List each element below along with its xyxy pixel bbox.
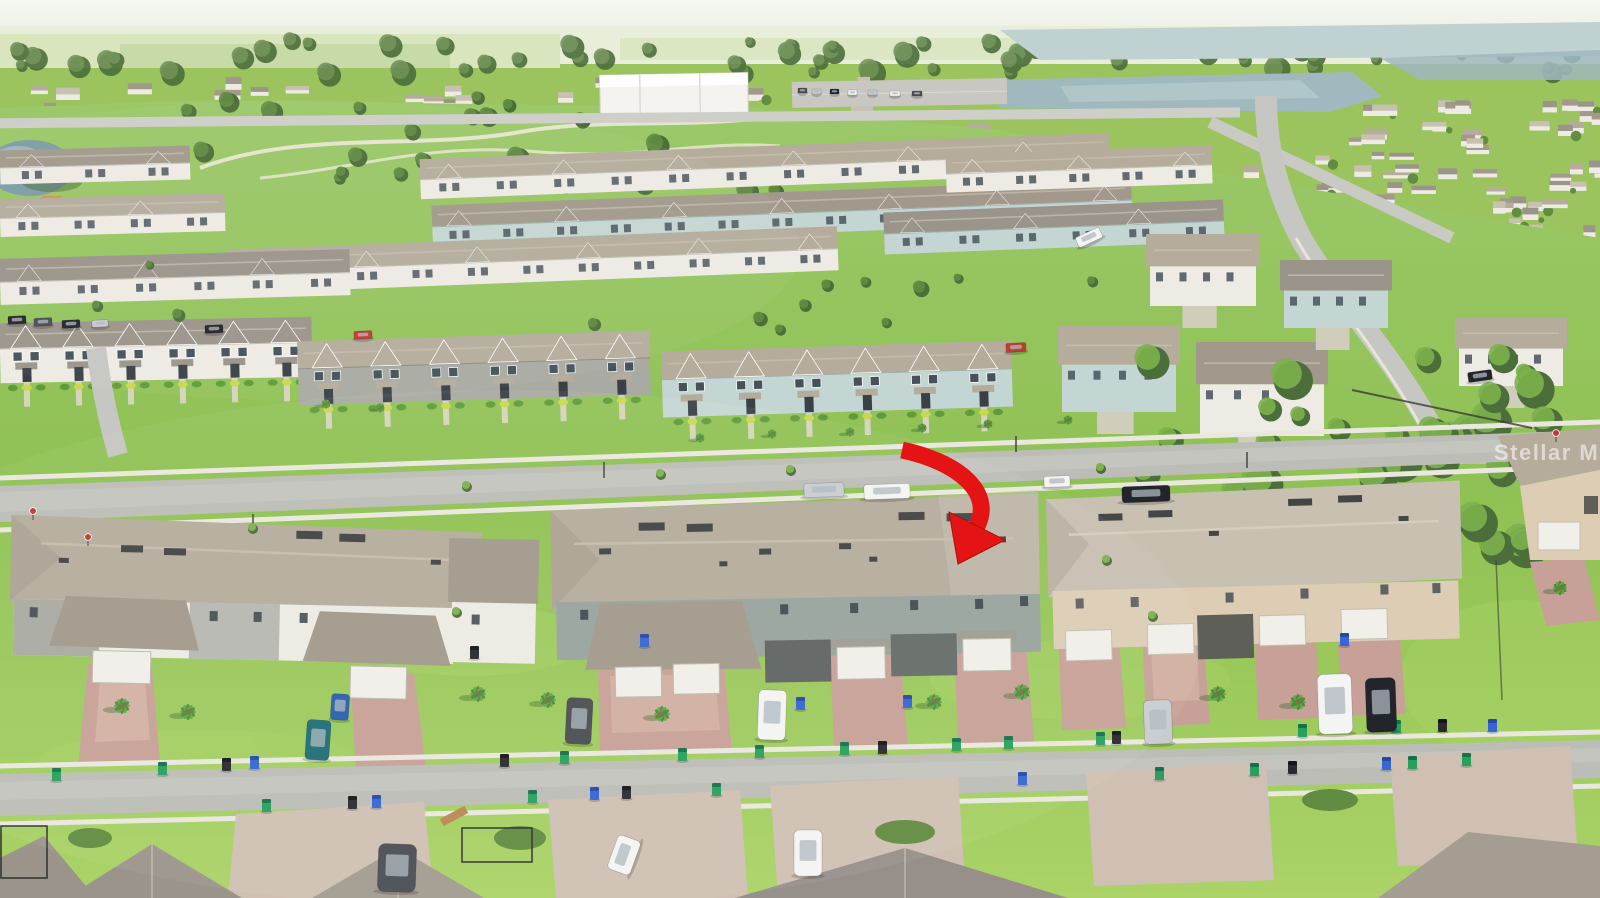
aerial-photo: Stellar MLS — [0, 0, 1600, 898]
lakes — [988, 22, 1600, 112]
aerial-photo-canvas: Stellar MLS — [0, 0, 1600, 898]
mls-watermark: Stellar MLS — [1494, 440, 1600, 465]
